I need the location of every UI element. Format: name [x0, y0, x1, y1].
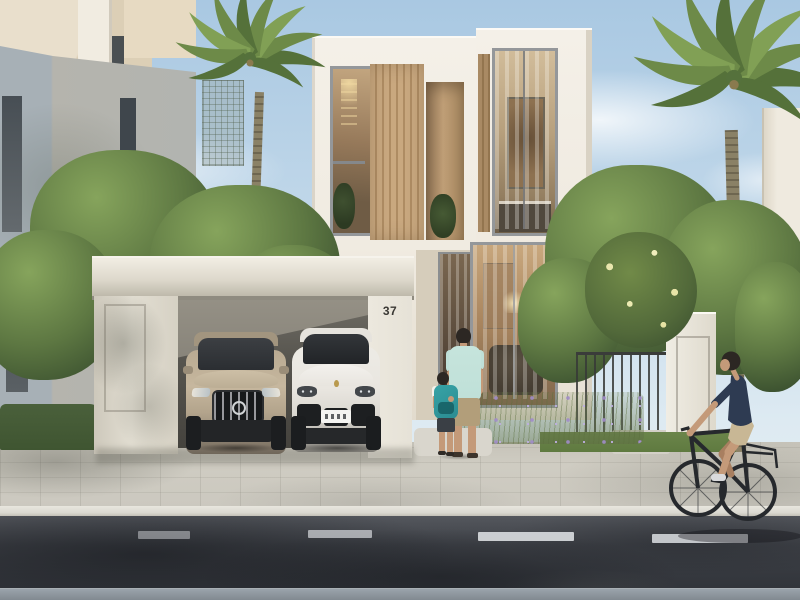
windshield — [198, 338, 274, 370]
timber-slat-strip — [478, 54, 490, 232]
house-number: 37 — [368, 304, 412, 318]
carport-canopy — [92, 256, 414, 300]
hood — [194, 370, 278, 388]
man-leg — [454, 426, 462, 453]
side-mirror — [183, 366, 193, 374]
joined-hands — [448, 396, 454, 402]
timber-slat-panel — [370, 64, 424, 240]
lane-marking-dash — [138, 531, 190, 539]
child-head — [437, 372, 449, 385]
sheer-curtain — [495, 51, 551, 229]
window-rail — [333, 161, 365, 164]
hedge — [0, 404, 100, 450]
child-shorts — [437, 418, 455, 432]
cyclist-on-bicycle — [645, 340, 800, 550]
brand-crest-icon — [334, 380, 339, 387]
palm-crown-icon — [622, 0, 800, 165]
far-kerb-strip — [0, 588, 800, 600]
suv-champagne — [186, 330, 286, 454]
timber-niche — [426, 82, 464, 240]
brand-star-icon — [232, 401, 246, 415]
windshield — [303, 334, 369, 364]
front-bumper — [196, 420, 276, 442]
child-leg — [447, 432, 453, 452]
indoor-plant — [430, 194, 456, 238]
pillar-panel — [104, 304, 146, 412]
man-leg — [468, 426, 476, 453]
license-plate-characters — [325, 414, 347, 419]
car-shadow — [288, 442, 386, 454]
headlight — [297, 386, 317, 397]
yellow-flowering-shrub — [585, 232, 697, 348]
scene-villa-exterior-render: 37 — [0, 0, 800, 600]
chandelier — [341, 79, 357, 125]
headlight — [355, 386, 375, 397]
lane-marking-dash — [308, 530, 372, 538]
child-backpack — [434, 385, 458, 419]
father-and-child — [424, 324, 494, 464]
child-leg — [439, 432, 445, 452]
headlight — [191, 388, 210, 397]
side-mirror — [279, 366, 289, 374]
man-head — [456, 328, 471, 344]
headlight — [261, 388, 280, 397]
upper-window-living — [330, 66, 374, 236]
lane-marking-dash — [478, 532, 574, 541]
indoor-plant — [333, 183, 355, 229]
carport-pillar-left — [94, 296, 178, 454]
radiator-grille — [212, 390, 264, 424]
upper-window-bedroom — [492, 48, 558, 236]
sandal — [467, 453, 478, 458]
backpack-pocket — [438, 402, 454, 414]
license-plate — [321, 410, 351, 423]
car-shadow — [182, 442, 290, 454]
palm-crown-icon — [182, 0, 332, 114]
window-slit — [2, 96, 22, 232]
child-shoe — [438, 451, 446, 455]
suv-white — [290, 328, 382, 454]
child-shoe — [446, 452, 454, 456]
